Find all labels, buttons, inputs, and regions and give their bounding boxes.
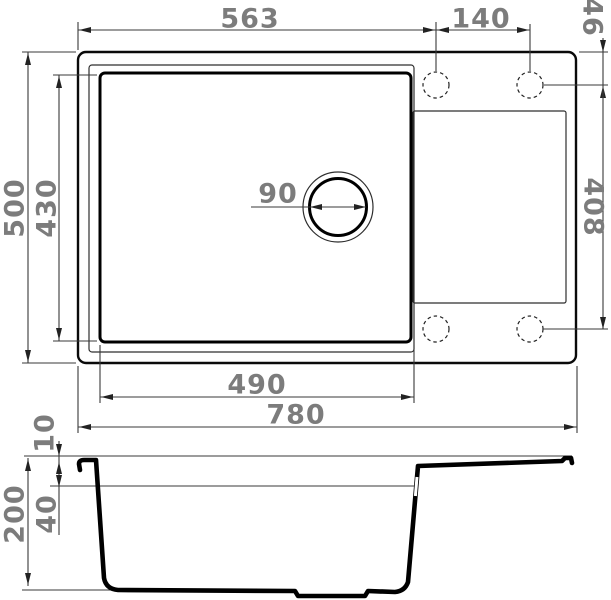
section-wall-break [415, 477, 417, 496]
dimension-bowl-depth: 430 [32, 75, 98, 341]
tap-hole [423, 72, 449, 98]
dimension-ledge-depth: 40 [32, 475, 63, 534]
dim-label-408: 408 [578, 177, 609, 236]
dimension-tap-hole-spacing: 140 [436, 4, 530, 72]
side-view [22, 456, 572, 596]
dim-label-430: 430 [32, 178, 63, 237]
dim-label-563: 563 [220, 4, 279, 35]
dim-label-46: 46 [577, 0, 608, 37]
technical-drawing-page: 563 140 46 408 500 430 [0, 0, 611, 600]
drainboard-inner-line [413, 111, 566, 303]
dim-label-10: 10 [30, 413, 61, 453]
tap-hole [423, 316, 449, 342]
dim-label-200: 200 [0, 484, 31, 543]
dim-label-490: 490 [227, 370, 286, 401]
dim-label-40: 40 [32, 494, 63, 534]
sink-technical-drawing: 563 140 46 408 500 430 [0, 0, 611, 600]
dimension-overall-width: 780 [78, 366, 577, 433]
dimension-bowl-height: 200 [0, 458, 31, 586]
dim-label-780: 780 [266, 400, 325, 431]
dimension-left-edge-to-tap-hole: 563 [78, 4, 436, 72]
dim-label-500: 500 [0, 178, 31, 237]
dimension-bowl-width: 490 [100, 345, 414, 403]
dim-label-140: 140 [451, 4, 510, 35]
sink-section-profile [79, 458, 572, 596]
dim-label-90: 90 [258, 179, 298, 210]
tap-hole [517, 72, 543, 98]
tap-hole [517, 316, 543, 342]
